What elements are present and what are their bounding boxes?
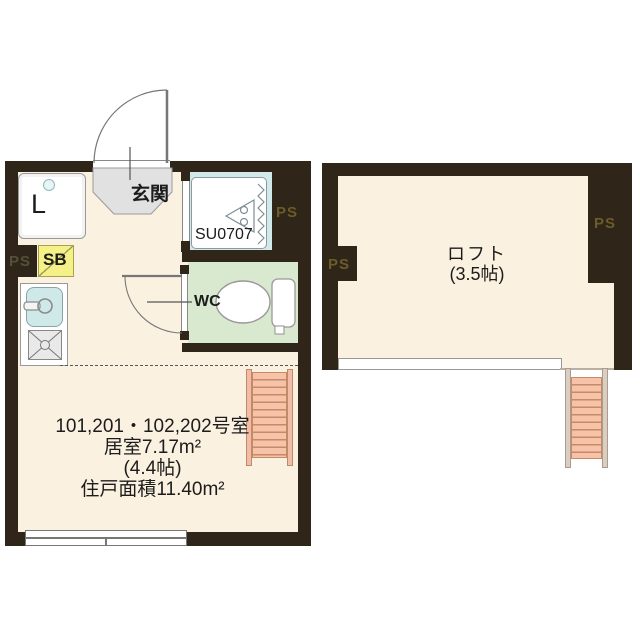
window-center-tick <box>105 537 107 545</box>
laundry-label: L <box>31 189 46 220</box>
loft-ladder-rungs <box>571 377 602 459</box>
wall-below-wc <box>182 343 298 352</box>
bath-door <box>182 180 190 242</box>
wc-label: WC <box>194 293 221 311</box>
loft-size-label: (3.5帖) <box>396 264 558 284</box>
entrance-threshold <box>93 160 170 169</box>
ps-label-left: PS <box>9 253 31 270</box>
ps-label-loft-right: PS <box>594 215 616 232</box>
kitchen-sink <box>26 287 63 327</box>
ps-label-bath: PS <box>276 204 298 221</box>
wc-door-post-bottom <box>180 331 189 340</box>
window-bottom <box>25 530 187 546</box>
shoebox-label: SB <box>43 250 67 270</box>
unit-bath-label: SU0707 <box>195 226 253 244</box>
ps-label-loft-left: PS <box>328 256 350 273</box>
loft-label-block: ロフト (3.5帖) <box>396 244 558 284</box>
bath-door-post-bottom <box>181 241 190 252</box>
loft-edge-dashed-line <box>60 365 298 366</box>
kitchen-stove <box>28 330 62 360</box>
entrance-door-arc <box>94 90 167 163</box>
total-area: 住戸面積11.40m² <box>25 479 280 500</box>
loft-wall-right <box>614 163 632 370</box>
floor-plan: 玄関 L SB SU0707 WC PS PS 101,201・102,202号… <box>0 0 640 640</box>
wc-door-frame <box>181 267 188 340</box>
room-area: 居室7.17m² <box>25 437 280 458</box>
wall-top-right <box>170 161 311 172</box>
ladder-right-rail <box>287 369 293 466</box>
loft-railing <box>338 358 562 370</box>
unit-info-text: 101,201・102,202号室 居室7.17m² (4.4帖) 住戸面積11… <box>25 416 280 500</box>
wall-bath-wc-divider <box>182 250 298 262</box>
loft-label: ロフト <box>396 244 558 264</box>
loft-wall-top <box>322 163 632 176</box>
wall-top-left <box>5 161 93 172</box>
wall-left <box>5 161 18 546</box>
bath-door-post-top <box>181 170 190 181</box>
room-tatami: (4.4帖) <box>25 458 280 479</box>
wall-right <box>298 161 311 546</box>
loft-ladder-right-rail <box>602 368 608 468</box>
unit-numbers: 101,201・102,202号室 <box>25 416 280 437</box>
entrance-label: 玄関 <box>131 179 169 206</box>
wc-door-post-top <box>180 265 189 274</box>
